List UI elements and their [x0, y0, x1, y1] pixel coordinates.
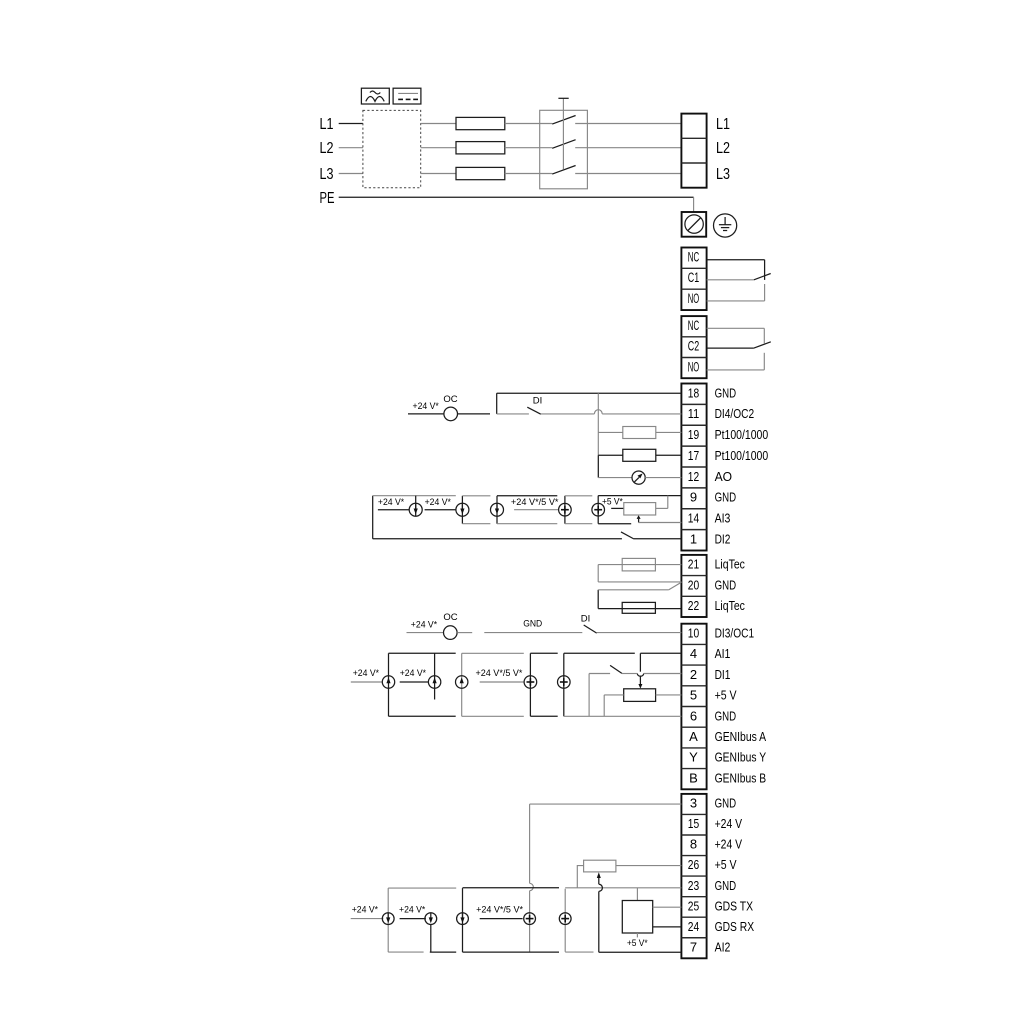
- svg-text:DI4/OC2: DI4/OC2: [715, 406, 755, 421]
- svg-text:AI2: AI2: [715, 939, 731, 954]
- svg-text:NO: NO: [688, 359, 699, 374]
- svg-text:11: 11: [688, 406, 699, 421]
- svg-text:14: 14: [688, 511, 699, 526]
- svg-text:PE: PE: [320, 190, 335, 207]
- svg-text:+24 V*: +24 V*: [378, 497, 405, 508]
- svg-text:23: 23: [688, 878, 699, 893]
- svg-text:DI: DI: [581, 614, 591, 625]
- svg-text:+24 V*/5 V*: +24 V*/5 V*: [511, 497, 559, 508]
- svg-text:AO: AO: [715, 469, 733, 484]
- svg-text:NC: NC: [688, 318, 700, 333]
- svg-text:L1: L1: [320, 116, 334, 133]
- svg-text:+24 V: +24 V: [715, 816, 743, 831]
- svg-text:L3: L3: [320, 166, 334, 183]
- svg-text:+24 V: +24 V: [715, 837, 743, 852]
- svg-text:4: 4: [690, 646, 697, 661]
- svg-text:7: 7: [690, 939, 697, 954]
- svg-text:Y: Y: [689, 750, 698, 765]
- svg-text:15: 15: [688, 816, 699, 831]
- svg-text:+24 V*/5 V*: +24 V*/5 V*: [476, 668, 523, 679]
- svg-text:25: 25: [688, 898, 699, 913]
- svg-text:GND: GND: [715, 577, 737, 592]
- svg-text:5: 5: [690, 688, 697, 703]
- svg-text:+5 V: +5 V: [715, 857, 737, 872]
- svg-text:20: 20: [688, 577, 699, 592]
- svg-text:+5 V*: +5 V*: [602, 497, 623, 508]
- svg-text:L2: L2: [320, 140, 334, 157]
- svg-text:+24 V*: +24 V*: [353, 668, 380, 679]
- svg-text:18: 18: [688, 385, 699, 400]
- svg-text:OC: OC: [443, 394, 457, 405]
- svg-text:2: 2: [690, 667, 697, 682]
- svg-text:+24 V*/5 V*: +24 V*/5 V*: [476, 905, 523, 916]
- svg-text:6: 6: [690, 708, 697, 723]
- svg-text:DI2: DI2: [715, 531, 731, 546]
- svg-text:+24 V*: +24 V*: [399, 905, 426, 916]
- svg-text:C1: C1: [688, 270, 699, 285]
- svg-text:+5 V: +5 V: [715, 688, 737, 703]
- svg-text:+24 V*: +24 V*: [411, 619, 438, 630]
- svg-text:19: 19: [688, 427, 699, 442]
- svg-text:17: 17: [688, 448, 699, 463]
- svg-text:10: 10: [688, 625, 699, 640]
- svg-text:AI1: AI1: [715, 646, 731, 661]
- svg-text:Pt100/1000: Pt100/1000: [715, 448, 769, 463]
- svg-text:LiqTec: LiqTec: [715, 598, 746, 613]
- svg-text:OC: OC: [443, 612, 457, 623]
- svg-text:+24 V*: +24 V*: [413, 401, 440, 412]
- svg-text:GND: GND: [523, 618, 542, 629]
- svg-text:GDS RX: GDS RX: [715, 919, 755, 934]
- svg-text:8: 8: [690, 837, 697, 852]
- svg-text:GENIbus A: GENIbus A: [715, 729, 767, 744]
- svg-text:1: 1: [690, 531, 697, 546]
- svg-text:GND: GND: [715, 796, 737, 811]
- svg-text:+5 V*: +5 V*: [627, 938, 648, 949]
- svg-text:+24 V*: +24 V*: [425, 497, 452, 508]
- svg-text:L1: L1: [716, 116, 730, 133]
- svg-text:DI1: DI1: [715, 667, 731, 682]
- svg-text:24: 24: [688, 919, 699, 934]
- svg-text:GENIbus B: GENIbus B: [715, 770, 767, 785]
- svg-text:GND: GND: [715, 878, 737, 893]
- svg-text:Pt100/1000: Pt100/1000: [715, 427, 769, 442]
- svg-text:22: 22: [688, 598, 699, 613]
- svg-text:AI3: AI3: [715, 511, 731, 526]
- svg-text:3: 3: [690, 796, 697, 811]
- svg-text:GDS TX: GDS TX: [715, 898, 754, 913]
- svg-text:A: A: [689, 729, 698, 744]
- svg-text:DI3/OC1: DI3/OC1: [715, 625, 755, 640]
- svg-text:+24 V*: +24 V*: [400, 668, 427, 679]
- svg-text:GND: GND: [715, 708, 737, 723]
- svg-text:LiqTec: LiqTec: [715, 557, 746, 572]
- svg-text:21: 21: [688, 557, 699, 572]
- svg-text:26: 26: [688, 857, 699, 872]
- svg-text:B: B: [689, 770, 698, 785]
- svg-text:+24 V*: +24 V*: [352, 905, 379, 916]
- svg-text:DI: DI: [533, 396, 543, 407]
- svg-text:GENIbus Y: GENIbus Y: [715, 750, 767, 765]
- svg-text:L2: L2: [716, 140, 730, 157]
- svg-text:L3: L3: [716, 166, 730, 183]
- svg-text:GND: GND: [715, 385, 737, 400]
- svg-text:NC: NC: [688, 249, 700, 264]
- svg-text:12: 12: [688, 469, 699, 484]
- svg-text:C2: C2: [688, 339, 699, 354]
- svg-text:GND: GND: [715, 490, 737, 505]
- svg-text:9: 9: [690, 490, 697, 505]
- svg-text:NO: NO: [688, 291, 699, 306]
